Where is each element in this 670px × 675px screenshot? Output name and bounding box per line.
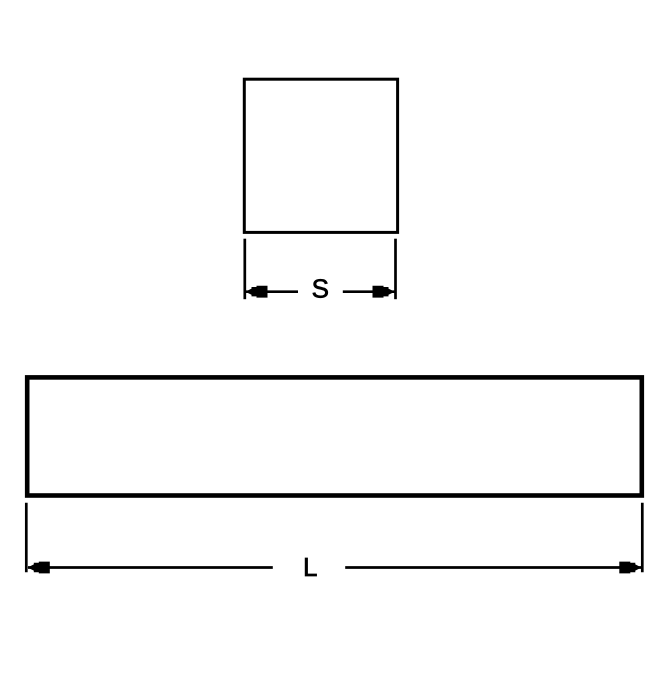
svg-text:L: L [303, 552, 317, 582]
svg-text:S: S [312, 274, 329, 304]
